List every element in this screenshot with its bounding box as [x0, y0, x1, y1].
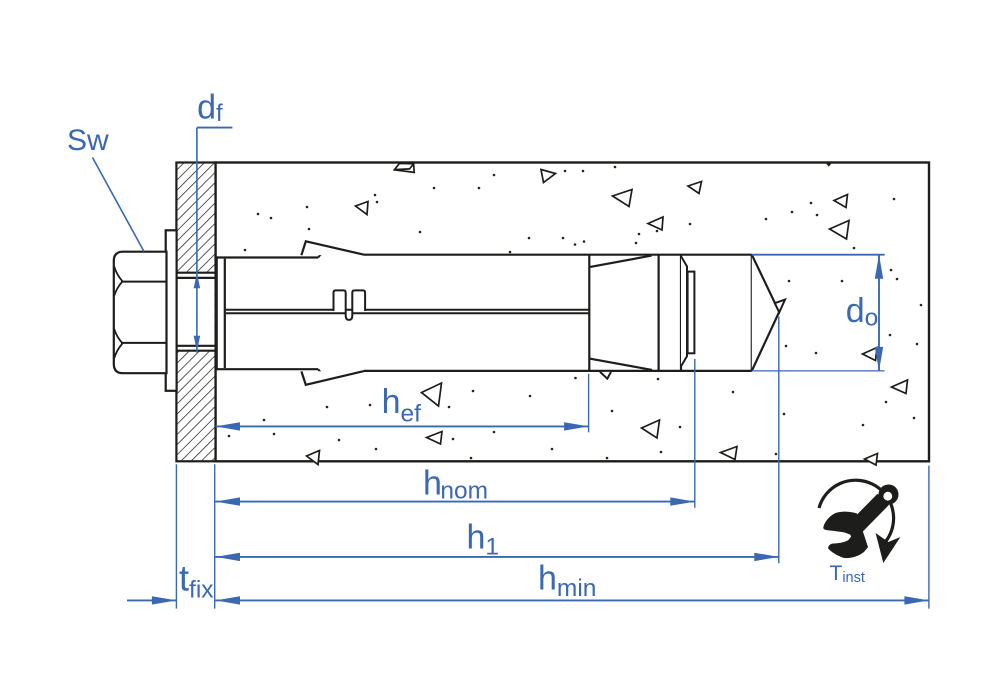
svg-text:Sw: Sw: [67, 124, 109, 157]
